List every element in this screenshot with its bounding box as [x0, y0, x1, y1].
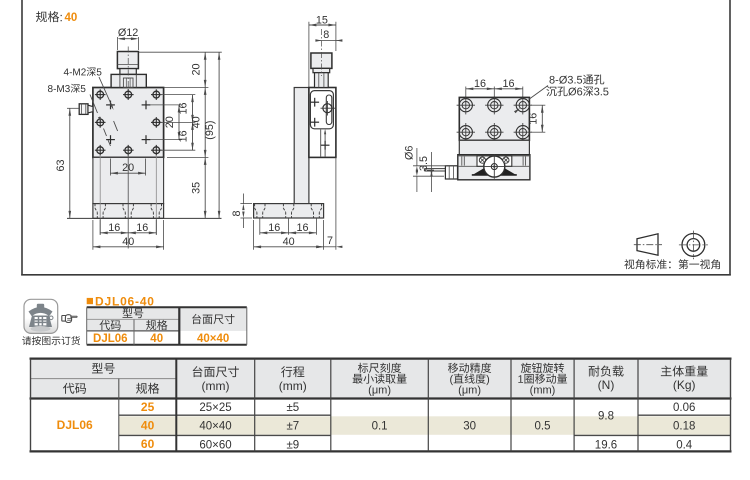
svg-text:40: 40: [65, 12, 78, 24]
svg-text:(95): (95): [204, 120, 216, 139]
svg-text:±7: ±7: [286, 420, 299, 432]
svg-text:0.5: 0.5: [535, 420, 551, 432]
svg-text:(mm): (mm): [530, 385, 556, 397]
svg-text:16: 16: [136, 222, 148, 234]
svg-text:0.18: 0.18: [673, 420, 695, 432]
svg-text:20: 20: [190, 63, 202, 75]
svg-text:±5: ±5: [286, 402, 299, 414]
svg-text:Ø12: Ø12: [118, 27, 138, 39]
svg-text:0.4: 0.4: [676, 439, 693, 451]
svg-text:(μm): (μm): [458, 385, 481, 397]
svg-text:40: 40: [141, 418, 155, 432]
svg-text:16: 16: [178, 130, 190, 142]
svg-text:25×25: 25×25: [199, 402, 231, 414]
svg-text:7: 7: [327, 235, 333, 247]
svg-text:35: 35: [190, 182, 202, 194]
svg-text:9.8: 9.8: [598, 411, 614, 423]
svg-text:8: 8: [323, 29, 329, 41]
svg-text:(Kg): (Kg): [673, 378, 696, 392]
svg-text:16: 16: [474, 78, 486, 90]
svg-text:15: 15: [316, 14, 328, 26]
svg-text:(mm): (mm): [279, 379, 307, 393]
svg-text:DJL06: DJL06: [93, 333, 128, 345]
svg-text:16: 16: [528, 113, 540, 125]
svg-text:60×60: 60×60: [199, 439, 231, 451]
svg-text:DJL06: DJL06: [57, 418, 93, 432]
svg-text:16: 16: [502, 78, 514, 90]
svg-text:0.06: 0.06: [673, 402, 695, 414]
svg-text:8: 8: [231, 210, 243, 216]
svg-text:±9: ±9: [286, 439, 299, 451]
svg-text:3.5: 3.5: [418, 156, 430, 171]
svg-text:40×40: 40×40: [197, 333, 229, 345]
svg-text:0.1: 0.1: [372, 420, 388, 432]
svg-text:40: 40: [190, 116, 202, 128]
svg-text:16: 16: [108, 222, 120, 234]
svg-text:40×40: 40×40: [199, 420, 231, 432]
svg-text:16: 16: [296, 222, 308, 234]
svg-text:60: 60: [141, 437, 155, 451]
svg-text:16: 16: [268, 222, 280, 234]
svg-text:40: 40: [283, 236, 295, 248]
svg-text:19.6: 19.6: [595, 439, 617, 451]
svg-text:20: 20: [164, 116, 176, 128]
svg-text:DJL06-40: DJL06-40: [95, 294, 155, 308]
svg-text:(N): (N): [598, 378, 615, 392]
svg-text:(μm): (μm): [368, 385, 391, 397]
svg-text:40: 40: [150, 333, 163, 345]
svg-text:63: 63: [55, 159, 67, 171]
svg-text:40: 40: [122, 236, 134, 248]
svg-text:(mm): (mm): [202, 379, 230, 393]
svg-text:30: 30: [463, 420, 476, 432]
svg-text:20: 20: [122, 162, 134, 174]
svg-text:25: 25: [141, 400, 155, 414]
